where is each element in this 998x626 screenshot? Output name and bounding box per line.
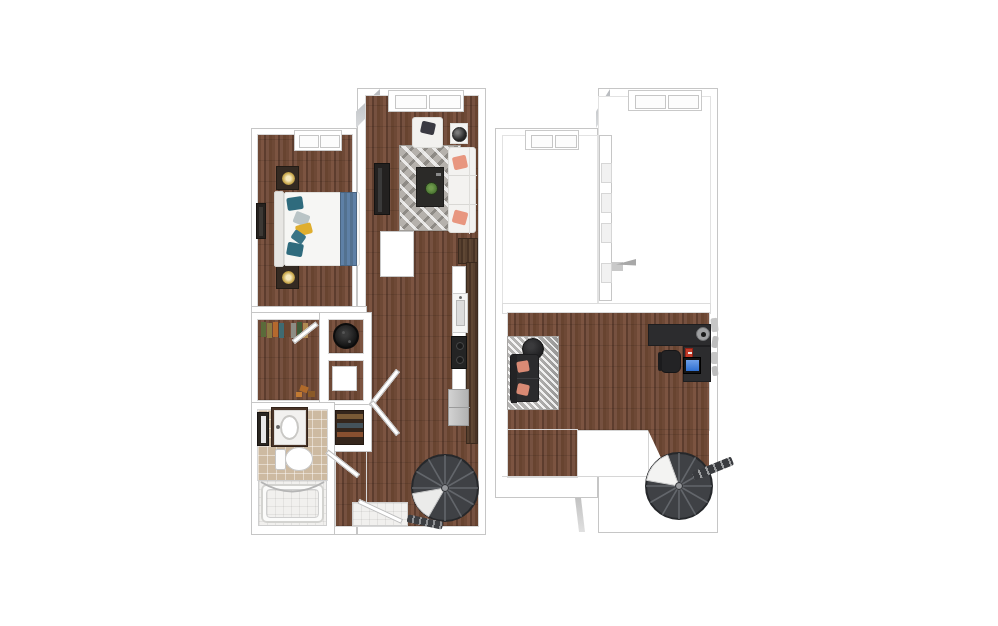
floor-plan-canvas [0, 0, 998, 626]
floor2-step-shadow-bottom [575, 498, 585, 532]
wall-rack [710, 316, 719, 380]
loveseat [510, 354, 539, 402]
floor-2-plan[interactable] [0, 0, 998, 626]
desk-lamp [696, 327, 710, 341]
loft-floor-left-leg [508, 430, 577, 477]
stairwell-notch [577, 430, 649, 477]
floor-edge-line [502, 476, 577, 477]
upper-window-right [628, 90, 702, 111]
open-to-below-left [502, 135, 598, 305]
upper-window-left [525, 130, 579, 150]
pillow-salmon [516, 360, 530, 373]
office-chair [660, 350, 681, 373]
monitor [683, 357, 701, 374]
open-to-below-right [598, 96, 711, 305]
monitor-screen [686, 360, 699, 371]
office-chair-back [658, 352, 662, 371]
pillow-salmon [516, 383, 530, 396]
spiral-staircase-floor2 [643, 450, 715, 522]
railing-wall [599, 135, 612, 301]
